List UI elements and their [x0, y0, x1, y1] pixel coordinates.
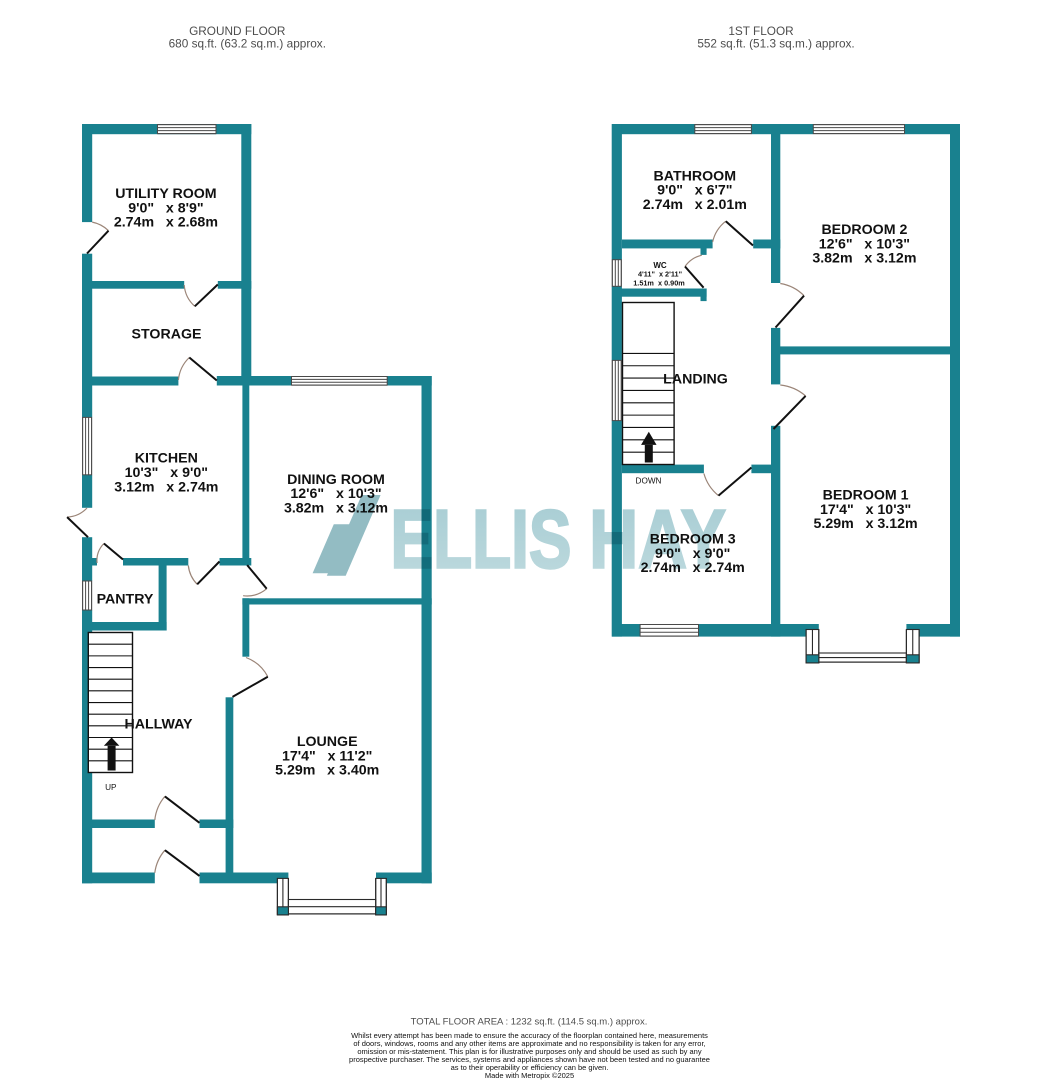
svg-text:HALLWAY: HALLWAY	[124, 717, 193, 733]
svg-text:680 sq.ft. (63.2 sq.m.) approx: 680 sq.ft. (63.2 sq.m.) approx.	[169, 37, 326, 51]
svg-text:LANDING: LANDING	[663, 372, 728, 388]
svg-text:552 sq.ft. (51.3 sq.m.) approx: 552 sq.ft. (51.3 sq.m.) approx.	[697, 37, 854, 51]
svg-text:DOWN: DOWN	[636, 477, 662, 486]
svg-text:5.29m x 3.12m: 5.29m x 3.12m	[814, 516, 918, 532]
svg-text:ELLIS: ELLIS	[391, 492, 572, 585]
svg-text:2.74m x 2.68m: 2.74m x 2.68m	[114, 215, 218, 231]
svg-text:STORAGE: STORAGE	[132, 327, 202, 343]
svg-text:WC: WC	[653, 261, 667, 270]
svg-text:TOTAL FLOOR AREA : 1232 sq.ft.: TOTAL FLOOR AREA : 1232 sq.ft. (114.5 sq…	[411, 1016, 648, 1027]
svg-text:3.12m x 2.74m: 3.12m x 2.74m	[114, 479, 218, 495]
svg-text:UP: UP	[105, 783, 117, 792]
svg-text:2.74m x 2.01m: 2.74m x 2.01m	[643, 197, 747, 213]
svg-text:HAY: HAY	[589, 492, 726, 585]
svg-text:3.82m x 3.12m: 3.82m x 3.12m	[812, 251, 916, 267]
svg-text:PANTRY: PANTRY	[97, 591, 154, 607]
svg-text:Made with Metropix ©2025: Made with Metropix ©2025	[485, 1071, 574, 1080]
svg-text:4'11" x 2'11": 4'11" x 2'11"	[638, 270, 682, 279]
svg-text:1.51m x 0.90m: 1.51m x 0.90m	[633, 279, 685, 288]
svg-text:5.29m x 3.40m: 5.29m x 3.40m	[275, 763, 379, 779]
